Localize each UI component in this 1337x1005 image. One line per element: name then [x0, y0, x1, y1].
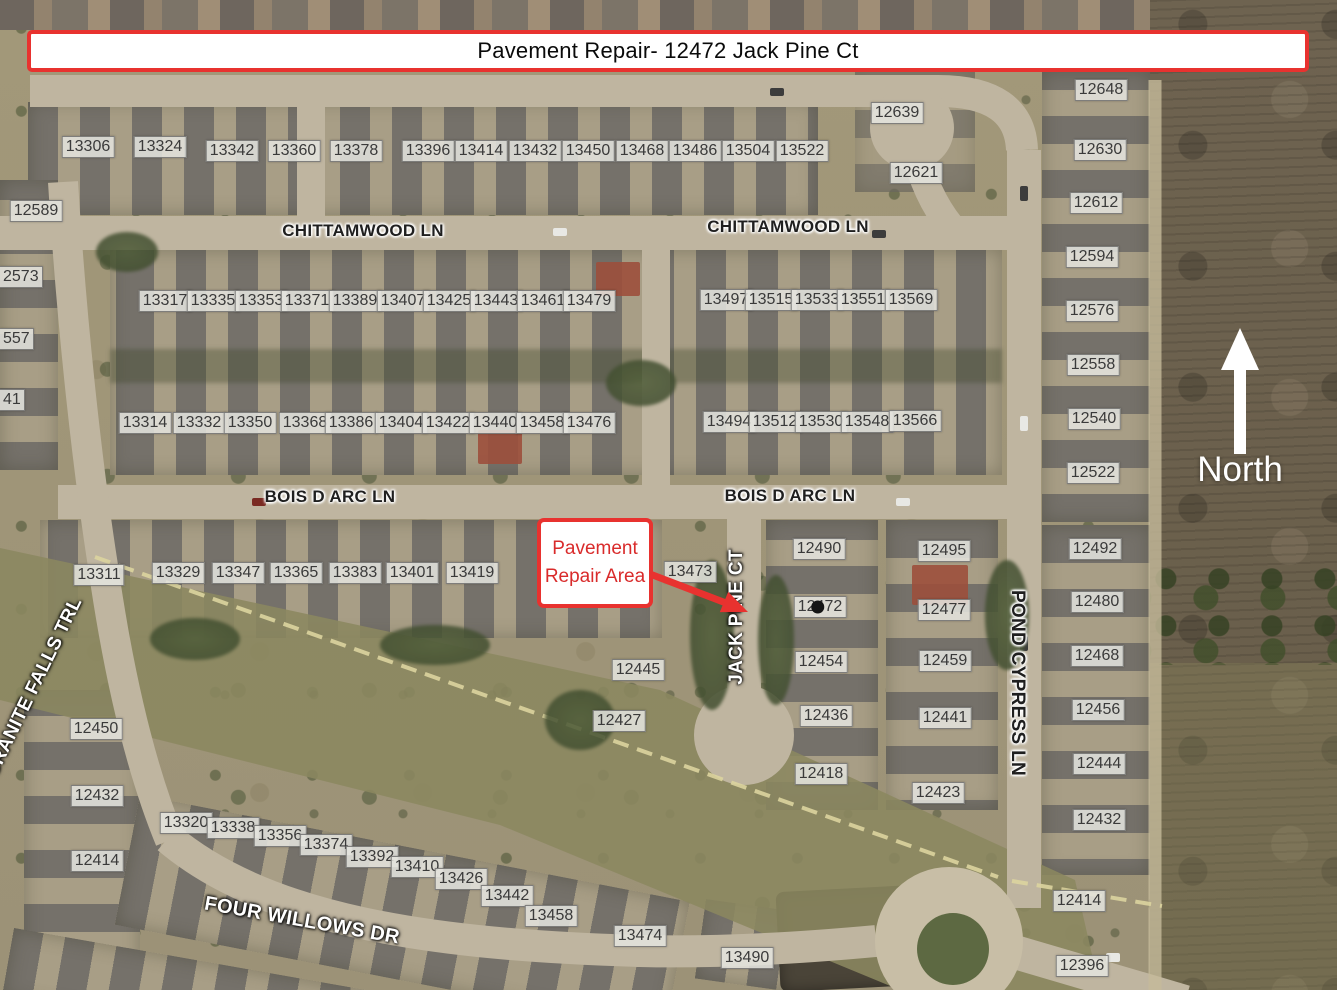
tree-cluster — [606, 360, 676, 406]
house-number-text: 12576 — [1070, 302, 1115, 319]
house-number-text: 13515 — [749, 291, 794, 308]
house-number-text: 13314 — [123, 414, 168, 431]
house-number-text: 13440 — [473, 414, 518, 431]
house-number-text: 13458 — [529, 907, 574, 924]
house-number-text: 12495 — [922, 542, 967, 559]
house-number-text: 13338 — [211, 819, 256, 836]
house-number-label: 12630 — [1074, 139, 1127, 161]
house-number-text: 2573 — [3, 268, 39, 285]
house-number-text: 13422 — [426, 414, 471, 431]
house-number-label: 13320 — [160, 812, 213, 834]
house-number-label: 41 — [0, 389, 25, 411]
house-number-label: 2573 — [0, 266, 43, 288]
title-text: Pavement Repair- 12472 Jack Pine Ct — [477, 38, 858, 64]
callout-line2: Repair Area — [545, 563, 645, 591]
house-number-label: 13533 — [791, 289, 844, 311]
house-number-label: 12468 — [1071, 645, 1124, 667]
house-number-text: 12444 — [1077, 755, 1122, 772]
house-number-text: 13392 — [350, 848, 395, 865]
house-number-label: 12589 — [10, 200, 63, 222]
house-number-label: 13404 — [375, 412, 428, 434]
house-number-text: 12414 — [75, 852, 120, 869]
street-label: BOIS D ARC LN — [265, 487, 396, 507]
house-number-text: 13425 — [427, 292, 472, 309]
house-number-label: 12427 — [593, 710, 646, 732]
street-label: JACK PINE CT — [726, 549, 748, 685]
house-number-text: 13450 — [566, 142, 611, 159]
house-number-label: 13548 — [841, 411, 894, 433]
house-number-text: 13401 — [390, 564, 435, 581]
house-number-text: 13386 — [329, 414, 374, 431]
house-number-label: 12576 — [1066, 300, 1119, 322]
house-number-label: 13473 — [664, 561, 717, 583]
house-number-text: 13324 — [138, 138, 183, 155]
house-number-label: 12441 — [919, 707, 972, 729]
house-number-label: 12432 — [1073, 809, 1126, 831]
house-number-label: 12436 — [800, 705, 853, 727]
house-number-label: 13317 — [139, 290, 192, 312]
house-number-text: 13347 — [216, 564, 261, 581]
house-number-text: 12639 — [875, 104, 920, 121]
house-number-label: 13468 — [616, 140, 669, 162]
house-number-text: 12414 — [1057, 892, 1102, 909]
street-label: CHITTAMWOOD LN — [707, 217, 869, 237]
house-number-label: 13378 — [330, 140, 383, 162]
house-number-label: 13425 — [423, 290, 476, 312]
field-tree-line — [1150, 560, 1337, 665]
house-number-text: 12432 — [1077, 811, 1122, 828]
house-number-text: 12558 — [1071, 356, 1116, 373]
field-light-area — [1150, 663, 1337, 990]
house-number-text: 13329 — [156, 564, 201, 581]
house-number-label: 13414 — [455, 140, 508, 162]
house-number-text: 12594 — [1070, 248, 1115, 265]
house-number-label: 13422 — [422, 412, 475, 434]
pavement-repair-callout: Pavement Repair Area — [537, 518, 653, 608]
house-number-text: 13407 — [381, 292, 426, 309]
house-number-text: 13306 — [66, 138, 111, 155]
house-number-text: 13533 — [795, 291, 840, 308]
house-number-text: 13504 — [726, 142, 771, 159]
house-number-label: 13442 — [481, 885, 534, 907]
map: CHITTAMWOOD LNCHITTAMWOOD LNBOIS D ARC L… — [0, 0, 1337, 990]
house-number-text: 13419 — [450, 564, 495, 581]
house-number-text: 13476 — [567, 414, 612, 431]
house-number-label: 13368 — [279, 412, 332, 434]
house-number-label: 12444 — [1073, 753, 1126, 775]
house-number-text: 13569 — [889, 291, 934, 308]
house-number-text: 13512 — [753, 413, 798, 430]
house-number-text: 12454 — [799, 653, 844, 670]
house-number-text: 12630 — [1078, 141, 1123, 158]
house-number-text: 13551 — [841, 291, 886, 308]
house-number-label: 13338 — [207, 817, 260, 839]
north-label: North — [1197, 450, 1283, 490]
house-number-text: 12436 — [804, 707, 849, 724]
house-number-label: 13360 — [268, 140, 321, 162]
street-label: BOIS D ARC LN — [725, 486, 856, 506]
house-number-text: 41 — [3, 391, 21, 408]
house-number-label: 13476 — [563, 412, 616, 434]
house-number-text: 13378 — [334, 142, 379, 159]
house-number-text: 12540 — [1072, 410, 1117, 427]
house-number-text: 13383 — [333, 564, 378, 581]
house-number-label: 13474 — [614, 925, 667, 947]
house-number-label: 13530 — [795, 411, 848, 433]
house-number-label: 13569 — [885, 289, 938, 311]
house-number-text: 12456 — [1076, 701, 1121, 718]
house-number-text: 12418 — [799, 765, 844, 782]
house-number-label: 13426 — [435, 868, 488, 890]
house-number-text: 13426 — [439, 870, 484, 887]
house-number-label: 13350 — [224, 412, 277, 434]
house-number-label: 557 — [0, 328, 34, 350]
house-number-label: 12472 — [794, 596, 847, 618]
house-number-text: 13374 — [304, 836, 349, 853]
house-number-text: 13404 — [379, 414, 424, 431]
house-number-label: 13512 — [749, 411, 802, 433]
house-number-text: 13468 — [620, 142, 665, 159]
house-number-text: 12427 — [597, 712, 642, 729]
house-number-label: 13494 — [703, 411, 756, 433]
house-number-label: 13479 — [563, 290, 616, 312]
house-number-label: 12456 — [1072, 699, 1125, 721]
house-number-text: 13410 — [395, 858, 440, 875]
top-roof-strip — [0, 0, 1150, 30]
house-number-text: 13566 — [893, 412, 938, 429]
house-number-text: 13332 — [177, 414, 222, 431]
housing-block — [0, 180, 58, 470]
house-number-label: 12477 — [918, 599, 971, 621]
street-label: CHITTAMWOOD LN — [282, 221, 444, 241]
house-number-text: 12441 — [923, 709, 968, 726]
house-number-text: 13353 — [239, 292, 284, 309]
house-number-label: 13486 — [669, 140, 722, 162]
house-number-label: 12612 — [1070, 192, 1123, 214]
house-number-text: 13486 — [673, 142, 718, 159]
house-number-label: 13347 — [212, 562, 265, 584]
house-number-label: 12450 — [70, 718, 123, 740]
house-number-text: 13479 — [567, 292, 612, 309]
house-number-text: 13371 — [285, 292, 330, 309]
house-number-text: 13360 — [272, 142, 317, 159]
house-number-label: 13443 — [470, 290, 523, 312]
house-number-text: 12423 — [916, 784, 961, 801]
house-number-label: 13396 — [402, 140, 455, 162]
house-number-label: 13515 — [745, 289, 798, 311]
house-number-label: 13522 — [776, 140, 829, 162]
house-number-text: 12450 — [74, 720, 119, 737]
backyard-trees — [110, 349, 1002, 383]
house-number-label: 12495 — [918, 540, 971, 562]
house-number-label: 13324 — [134, 136, 187, 158]
house-number-text: 13317 — [143, 292, 188, 309]
house-number-text: 13497 — [704, 291, 749, 308]
house-number-text: 12612 — [1074, 194, 1119, 211]
house-number-label: 12414 — [1053, 890, 1106, 912]
house-number-label: 12432 — [71, 785, 124, 807]
tree-cluster — [380, 625, 490, 665]
callout-line1: Pavement — [552, 535, 638, 563]
house-number-text: 12396 — [1060, 957, 1105, 974]
house-number-label: 13458 — [525, 905, 578, 927]
house-number-label: 12492 — [1069, 538, 1122, 560]
house-number-label: 13551 — [837, 289, 890, 311]
house-number-text: 13548 — [845, 413, 890, 430]
house-number-text: 13522 — [780, 142, 825, 159]
house-number-label: 13335 — [187, 290, 240, 312]
house-number-text: 13414 — [459, 142, 504, 159]
house-number-label: 12558 — [1067, 354, 1120, 376]
red-roof — [478, 430, 522, 464]
house-number-text: 13396 — [406, 142, 451, 159]
house-number-label: 13386 — [325, 412, 378, 434]
house-number-text: 12432 — [75, 787, 120, 804]
housing-block — [110, 250, 1002, 475]
house-number-text: 12621 — [894, 164, 939, 181]
house-number-text: 12468 — [1075, 647, 1120, 664]
house-number-text: 13490 — [725, 949, 770, 966]
tree-cluster — [96, 232, 158, 272]
house-number-label: 13432 — [509, 140, 562, 162]
house-number-text: 13356 — [258, 827, 303, 844]
house-number-text: 12648 — [1079, 81, 1124, 98]
house-number-text: 13320 — [164, 814, 209, 831]
house-number-label: 13374 — [300, 834, 353, 856]
house-number-text: 12492 — [1073, 540, 1118, 557]
house-number-text: 12459 — [923, 652, 968, 669]
house-number-text: 13474 — [618, 927, 663, 944]
house-number-text: 12490 — [797, 540, 842, 557]
tree-cluster — [758, 575, 794, 705]
house-number-label: 12480 — [1071, 591, 1124, 613]
house-number-label: 13383 — [329, 562, 382, 584]
tree-cluster — [150, 618, 240, 660]
house-number-label: 13365 — [270, 562, 323, 584]
house-number-label: 12522 — [1067, 462, 1120, 484]
house-number-label: 13356 — [254, 825, 307, 847]
house-number-label: 12540 — [1068, 408, 1121, 430]
house-number-text: 12477 — [922, 601, 967, 618]
house-number-label: 13401 — [386, 562, 439, 584]
house-number-label: 13504 — [722, 140, 775, 162]
house-number-label: 12639 — [871, 102, 924, 124]
house-number-text: 12522 — [1071, 464, 1116, 481]
amenity-building — [775, 884, 940, 990]
house-number-text: 13350 — [228, 414, 273, 431]
house-number-text: 13461 — [521, 292, 566, 309]
house-number-label: 13440 — [469, 412, 522, 434]
house-number-text: 13311 — [77, 566, 120, 583]
house-number-label: 13306 — [62, 136, 115, 158]
house-number-label: 13490 — [721, 947, 774, 969]
house-number-label: 13419 — [446, 562, 499, 584]
house-number-label: 13371 — [281, 290, 334, 312]
house-number-label: 13314 — [119, 412, 172, 434]
house-number-label: 13461 — [517, 290, 570, 312]
house-number-label: 13342 — [206, 140, 259, 162]
house-number-label: 12423 — [912, 782, 965, 804]
house-number-label: 13311 — [73, 564, 124, 586]
house-number-label: 12594 — [1066, 246, 1119, 268]
house-number-label: 13329 — [152, 562, 205, 584]
location-marker-dot — [811, 601, 824, 614]
house-number-label: 13458 — [516, 412, 569, 434]
house-number-text: 13368 — [283, 414, 328, 431]
house-number-label: 13389 — [329, 290, 382, 312]
house-number-label: 13407 — [377, 290, 430, 312]
house-number-text: 13458 — [520, 414, 565, 431]
house-number-label: 12459 — [919, 650, 972, 672]
house-number-label: 12648 — [1075, 79, 1128, 101]
house-number-label: 12454 — [795, 651, 848, 673]
title-banner: Pavement Repair- 12472 Jack Pine Ct — [27, 30, 1309, 72]
house-number-text: 13530 — [799, 413, 844, 430]
house-number-label: 12414 — [71, 850, 124, 872]
house-number-text: 13335 — [191, 292, 236, 309]
house-number-text: 13442 — [485, 887, 530, 904]
house-number-text: 13473 — [668, 563, 713, 580]
house-number-label: 12490 — [793, 538, 846, 560]
house-number-label: 13450 — [562, 140, 615, 162]
house-number-text: 12480 — [1075, 593, 1120, 610]
house-number-text: 13365 — [274, 564, 319, 581]
house-number-text: 557 — [3, 330, 30, 347]
house-number-label: 12621 — [890, 162, 943, 184]
house-number-text: 13494 — [707, 413, 752, 430]
house-number-label: 13353 — [235, 290, 288, 312]
house-number-label: 12418 — [795, 763, 848, 785]
house-number-text: 12445 — [616, 661, 661, 678]
house-number-text: 13432 — [513, 142, 558, 159]
house-number-text: 13342 — [210, 142, 255, 159]
house-number-label: 13332 — [173, 412, 226, 434]
house-number-label: 12445 — [612, 659, 665, 681]
house-number-text: 12589 — [14, 202, 59, 219]
house-number-label: 13566 — [889, 410, 942, 432]
pavement-repair-flyer: CHITTAMWOOD LNCHITTAMWOOD LNBOIS D ARC L… — [0, 0, 1337, 1005]
house-number-text: 13443 — [474, 292, 519, 309]
house-number-text: 13389 — [333, 292, 378, 309]
street-label: POND CYPRESS LN — [1006, 590, 1028, 776]
house-number-label: 12396 — [1056, 955, 1109, 977]
